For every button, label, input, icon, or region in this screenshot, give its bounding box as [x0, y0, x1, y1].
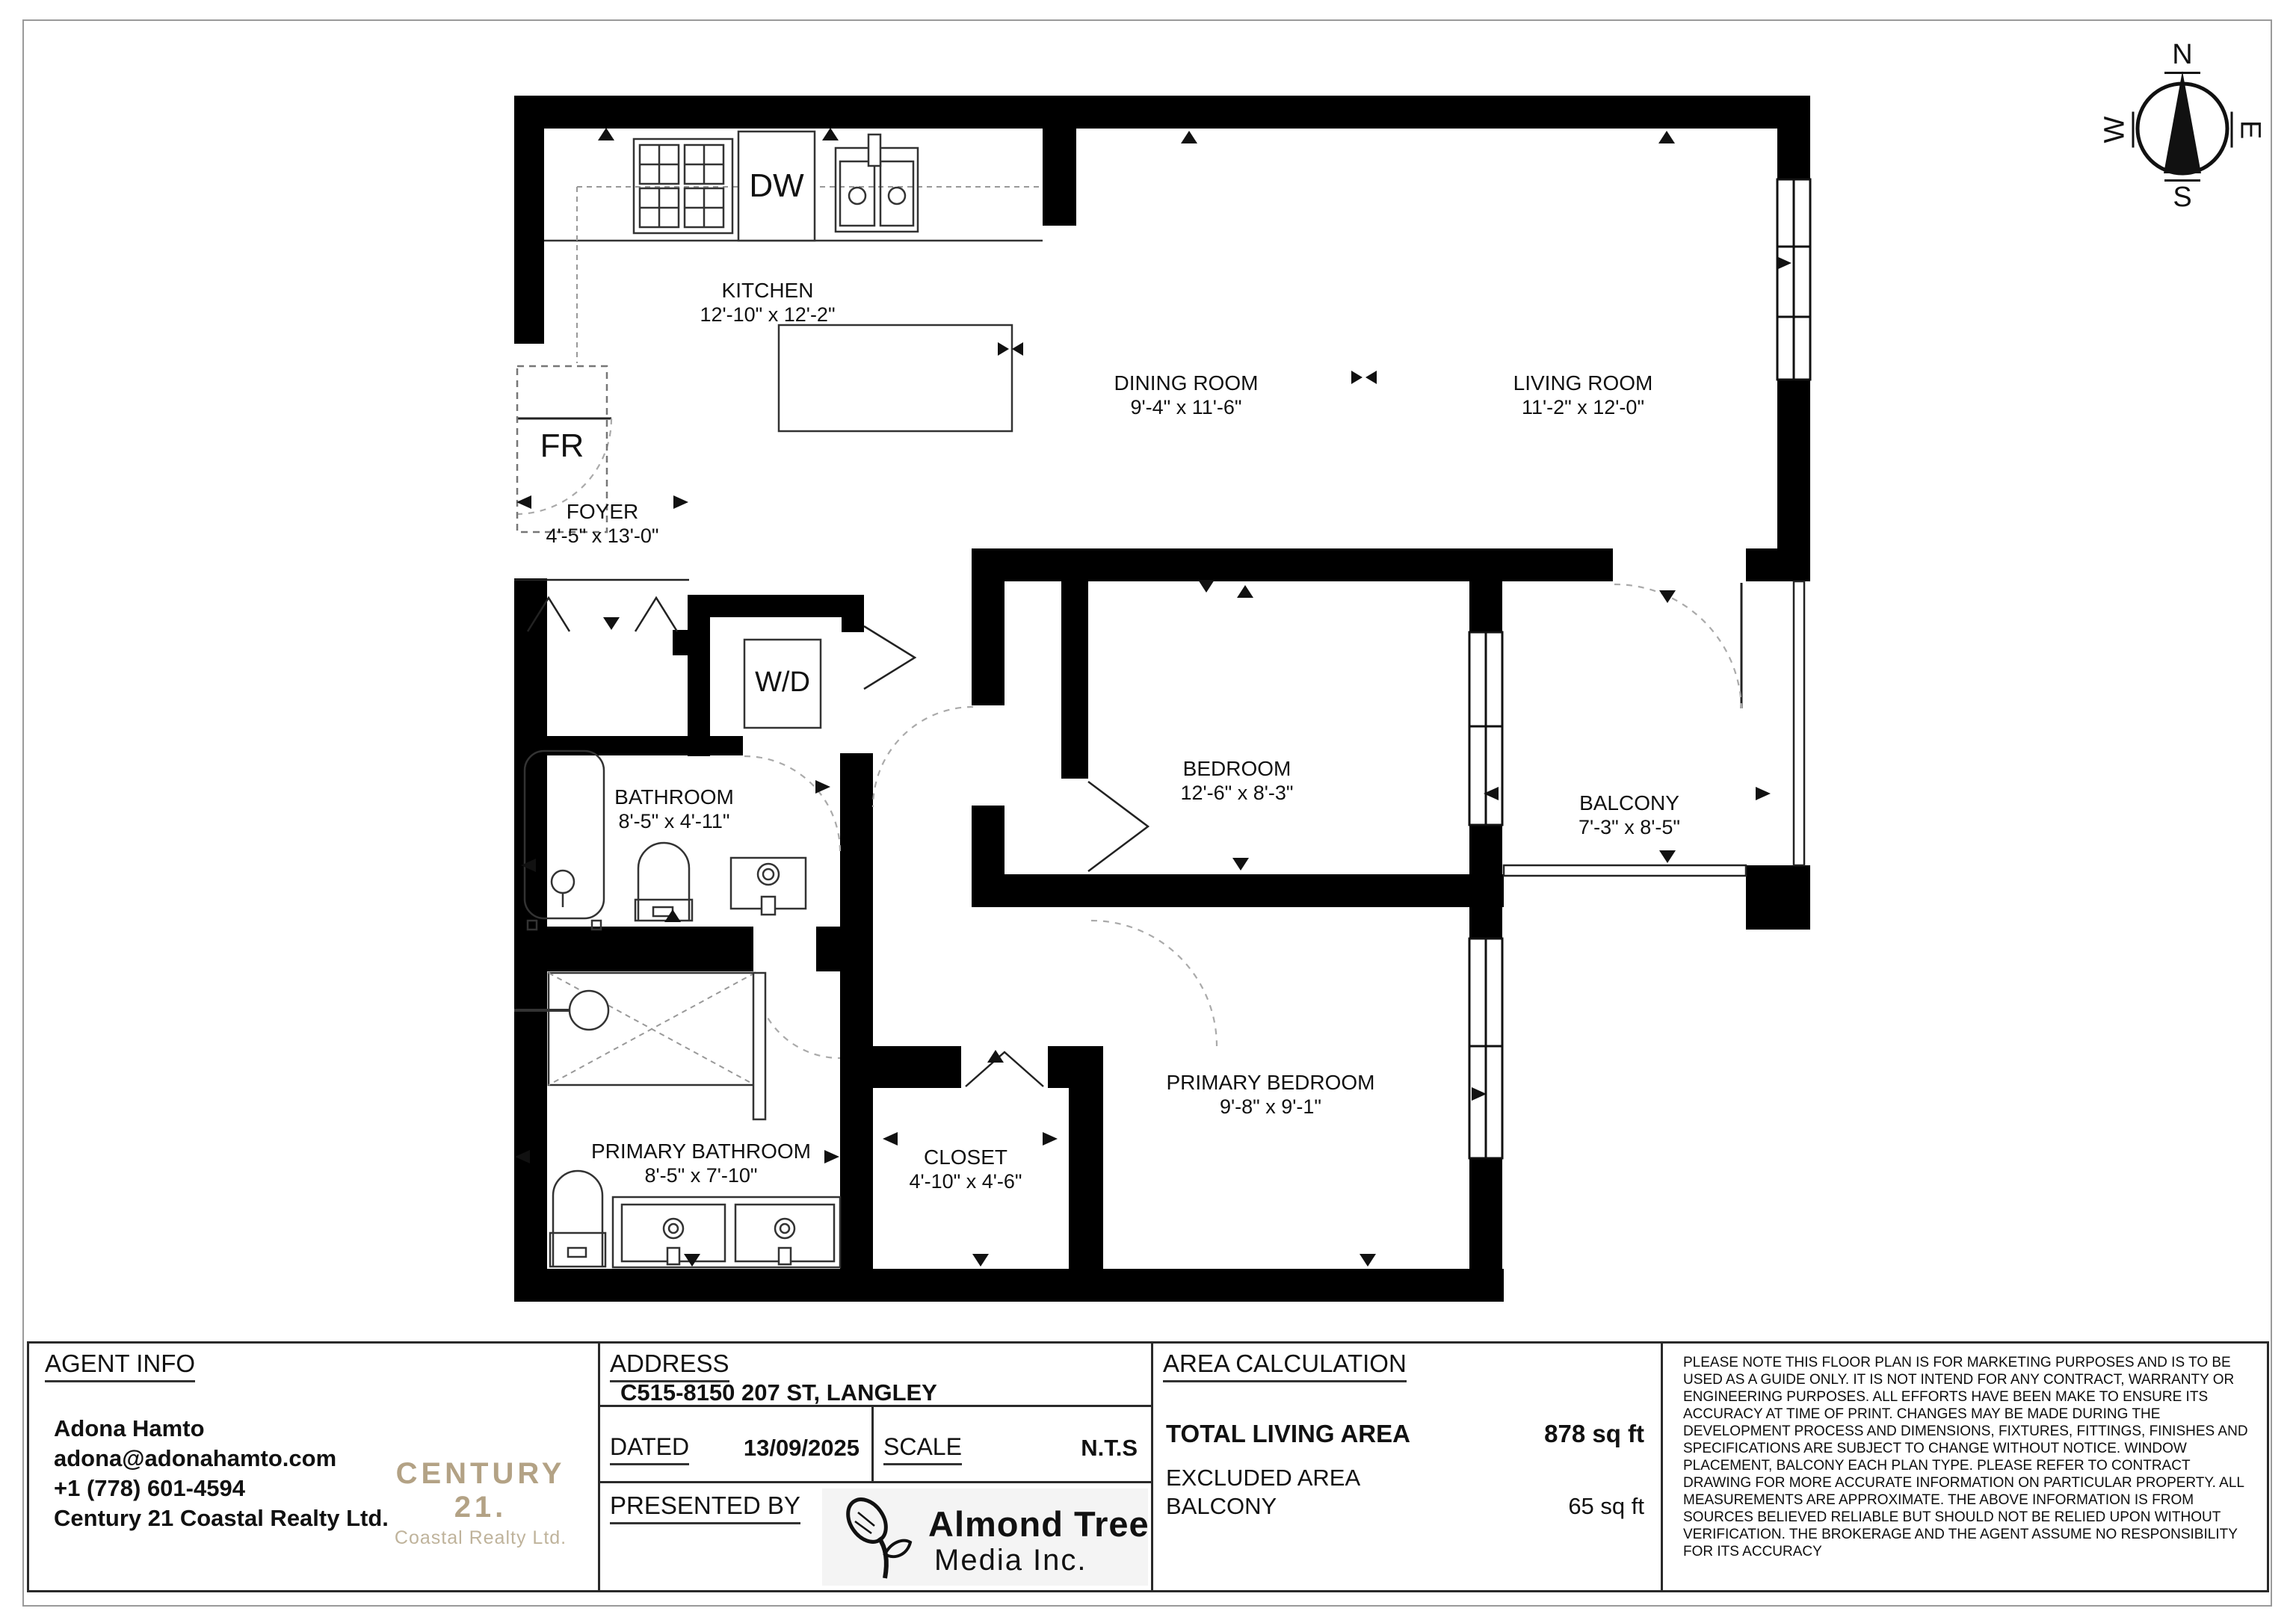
- toilet-icon: [635, 843, 692, 921]
- total-living-area-label: TOTAL LIVING AREA: [1166, 1420, 1410, 1448]
- room-label-dining-room: DINING ROOM 9'-4" x 11'-6": [1074, 371, 1298, 420]
- presented-by-heading: PRESENTED BY: [610, 1491, 800, 1524]
- window-primary-bedroom-icon: [1469, 939, 1502, 1158]
- walls-layer: [514, 96, 1810, 1302]
- floor-plan-page: { "rooms": { "kitchen": {"name":"KITCHEN…: [0, 0, 2296, 1623]
- fridge-label: FR: [517, 427, 607, 465]
- area-calculation-heading: AREA CALCULATION: [1163, 1350, 1407, 1382]
- dated-value: 13/09/2025: [710, 1435, 860, 1462]
- compass-icon: [2138, 71, 2227, 173]
- compass-east-label: E: [2231, 112, 2266, 148]
- table-divider-3: [1661, 1341, 1663, 1590]
- excluded-balcony-value: 65 sq ft: [1465, 1493, 1644, 1520]
- table-divider-1: [598, 1341, 600, 1590]
- agent-info-heading: AGENT INFO: [45, 1350, 195, 1382]
- dated-label: DATED: [610, 1433, 689, 1465]
- dated-scale-divider: [871, 1405, 874, 1481]
- room-label-bedroom: BEDROOM 12'-6" x 8'-3": [1125, 756, 1349, 806]
- bathroom-sink-icon: [731, 858, 806, 915]
- table-divider-2: [1151, 1341, 1153, 1590]
- address-row-divider-2: [598, 1481, 1153, 1483]
- room-label-bathroom: BATHROOM 8'-5" x 4'-11": [562, 785, 786, 834]
- presenter-name-line2: Media Inc.: [934, 1544, 1087, 1577]
- scale-label: SCALE: [883, 1433, 962, 1465]
- agent-brokerage: Century 21 Coastal Realty Ltd.: [54, 1503, 389, 1533]
- presenter-name-line1: Almond Tree: [928, 1503, 1149, 1545]
- room-label-foyer: FOYER 4'-5" x 13'-0": [528, 499, 677, 548]
- century21-logo: CENTURY 21. Coastal Realty Ltd.: [365, 1457, 596, 1549]
- window-living-icon: [1777, 179, 1810, 380]
- compass-north-label: N: [2164, 39, 2200, 74]
- room-label-kitchen: KITCHEN 12'-10" x 12'-2": [655, 278, 880, 327]
- kitchen-sink-icon: [836, 135, 918, 232]
- compass-west-label: W: [2099, 112, 2135, 148]
- washer-dryer-label: W/D: [744, 667, 821, 699]
- excluded-balcony-label: BALCONY: [1166, 1493, 1277, 1520]
- room-label-closet: CLOSET 4'-10" x 4'-6": [876, 1145, 1055, 1194]
- agent-name: Adona Hamto: [54, 1414, 389, 1444]
- excluded-area-label: EXCLUDED AREA: [1166, 1465, 1360, 1491]
- century21-logo-wordmark: CENTURY 21.: [365, 1457, 596, 1524]
- room-label-primary-bathroom: PRIMARY BATHROOM 8'-5" x 7'-10": [552, 1139, 851, 1188]
- agent-phone: +1 (778) 601-4594: [54, 1474, 389, 1503]
- disclaimer-text: PLEASE NOTE THIS FLOOR PLAN IS FOR MARKE…: [1683, 1354, 2260, 1560]
- address-value: C515-8150 207 ST, LANGLEY: [620, 1379, 937, 1406]
- scale-value: N.T.S: [994, 1435, 1138, 1462]
- agent-details: Adona Hamto adona@adonahamto.com +1 (778…: [54, 1414, 389, 1533]
- address-heading: ADDRESS: [610, 1350, 729, 1382]
- room-label-balcony: BALCONY 7'-3" x 8'-5": [1540, 791, 1719, 840]
- compass-south-label: S: [2164, 179, 2200, 214]
- kitchen-island: [779, 325, 1012, 431]
- total-living-area-value: 878 sq ft: [1420, 1420, 1644, 1448]
- double-vanity-icon: [613, 1197, 840, 1267]
- agent-email: adona@adonahamto.com: [54, 1444, 389, 1474]
- dishwasher-label: DW: [738, 167, 815, 205]
- century21-logo-subtext: Coastal Realty Ltd.: [365, 1527, 596, 1549]
- shower-icon: [514, 973, 765, 1119]
- room-label-living-room: LIVING ROOM 11'-2" x 12'-0": [1471, 371, 1695, 420]
- room-label-primary-bedroom: PRIMARY BEDROOM 9'-8" x 9'-1": [1121, 1070, 1420, 1119]
